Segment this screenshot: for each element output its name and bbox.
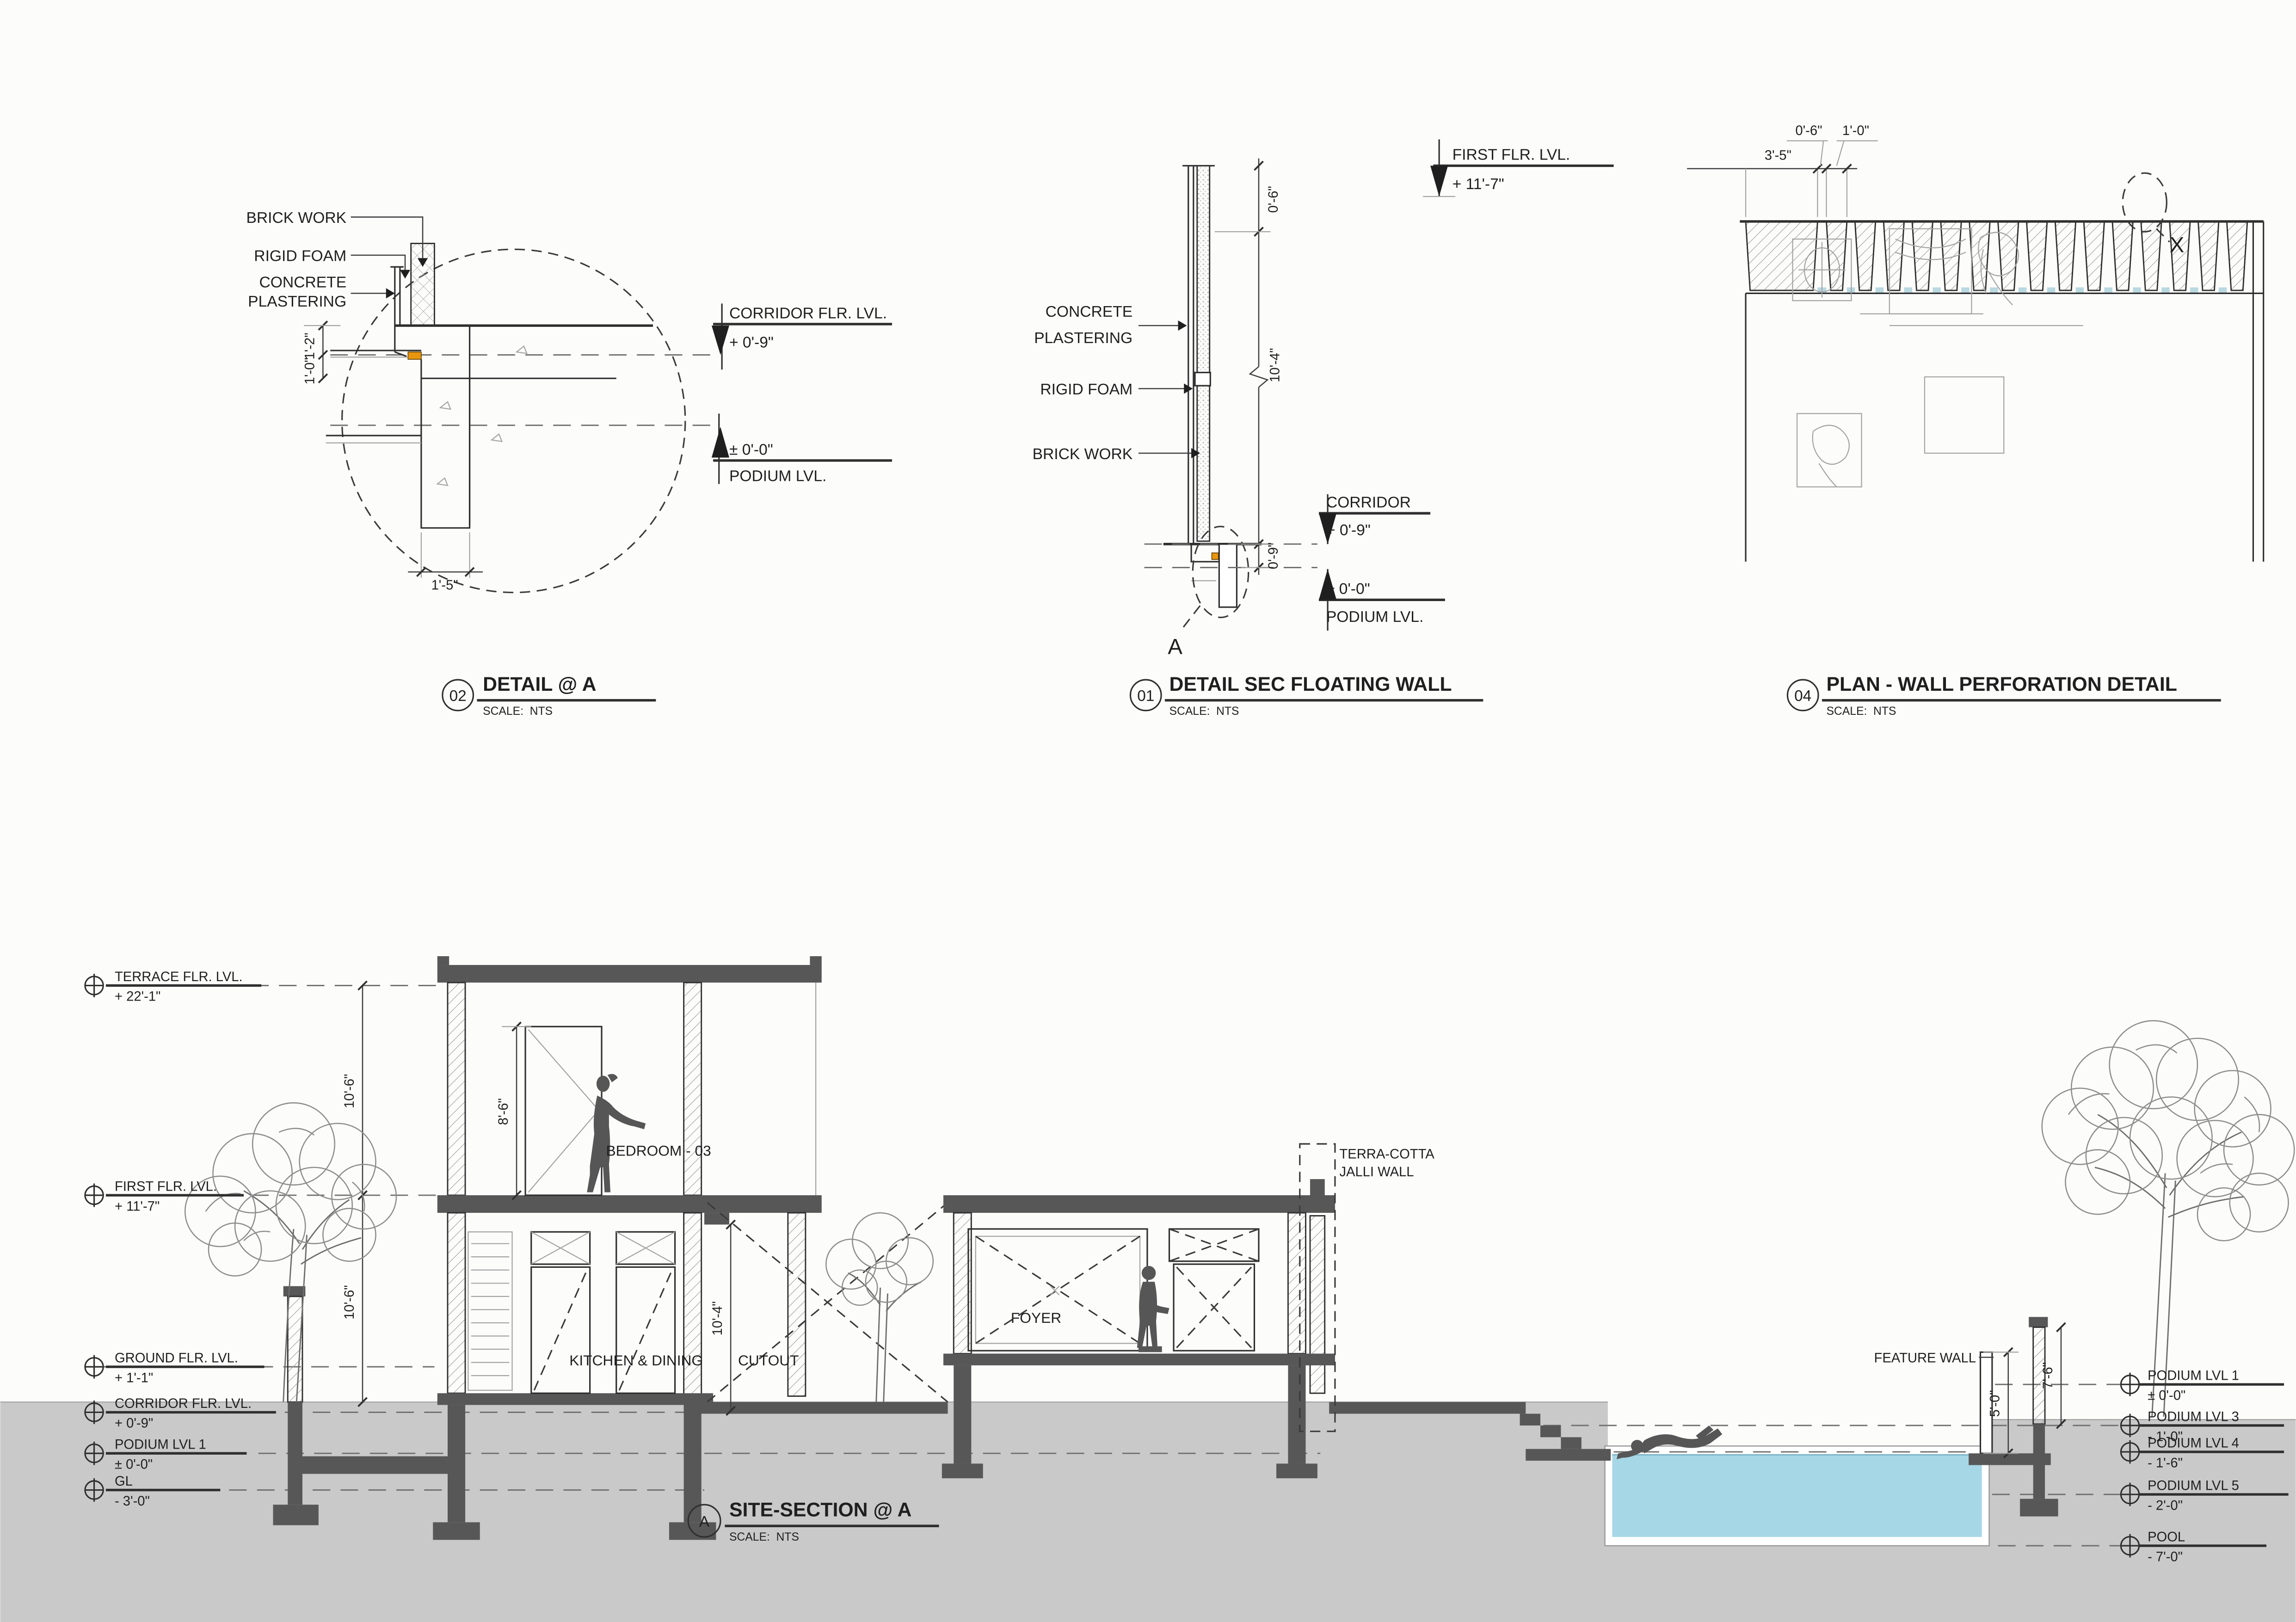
level-name: TERRACE FLR. LVL. xyxy=(115,970,243,984)
arrow-right-icon xyxy=(386,288,395,298)
room-label-kitchen: KITCHEN & DINING xyxy=(569,1352,703,1369)
bedroom-right-wall xyxy=(684,983,702,1195)
cutout-tree xyxy=(826,1213,933,1411)
rigid-foam-label: RIGID FOAM xyxy=(254,248,346,265)
detail-04: 3'-5" 0'-6" 1'-0" X 04 PL xyxy=(1687,123,2264,718)
brick-work-label: BRICK WORK xyxy=(1033,446,1133,463)
level-flag-down-icon xyxy=(712,326,729,355)
room-label-foyer: FOYER xyxy=(1011,1309,1061,1326)
woman-silhouette xyxy=(587,1074,646,1192)
concrete-plastering-label-2: PLASTERING xyxy=(1034,330,1133,347)
corridor-slab xyxy=(684,1402,948,1413)
level-value: - 1'-6" xyxy=(2148,1456,2183,1470)
rigid-foam-label: RIGID FOAM xyxy=(1040,381,1133,398)
ground-right-wall xyxy=(684,1213,702,1402)
detail-title: DETAIL @ A xyxy=(483,673,596,695)
detail-number: 04 xyxy=(1794,688,1811,705)
arrow-down-icon xyxy=(400,270,410,279)
level-value: + 22'-1" xyxy=(115,989,160,1004)
level-value: + 1'-1" xyxy=(115,1370,153,1385)
level-name: GROUND FLR. LVL. xyxy=(115,1351,238,1366)
dim-boundary-wall: 7'-6" xyxy=(2041,1362,2056,1389)
level-name: CORRIDOR FLR. LVL. xyxy=(115,1396,252,1411)
section-dimensions: 10'-6" 10'-6" 8'-6" 10'-4" 7'-6" 5'-0" xyxy=(342,981,2065,1458)
right-tree xyxy=(2042,1021,2295,1417)
beam-stem xyxy=(421,378,470,528)
scale-label: SCALE: xyxy=(1169,705,1210,718)
title-detail-02: 02 DETAIL @ A SCALE: NTS xyxy=(443,673,656,718)
level-name: GL xyxy=(115,1474,133,1489)
dim-feature-wall: 5'-0" xyxy=(1988,1390,2003,1417)
title-detail-01: 01 DETAIL SEC FLOATING WALL SCALE: NTS xyxy=(1130,673,1483,718)
room-label-cutout: CUTOUT xyxy=(738,1352,799,1369)
detail-number: 02 xyxy=(449,688,467,705)
scale-label: SCALE: xyxy=(729,1531,770,1543)
detail-title: DETAIL SEC FLOATING WALL xyxy=(1169,673,1452,695)
dim-slab-depth: 1'-2" xyxy=(302,332,317,359)
level-value: + 11'-7" xyxy=(115,1199,160,1214)
dim-top: 0'-6" xyxy=(1266,186,1281,213)
dim-lower-floor: 10'-6" xyxy=(342,1285,357,1319)
kitchen-interior xyxy=(468,1232,675,1393)
beam-stem xyxy=(1219,544,1237,607)
callout-letter: A xyxy=(1168,635,1182,659)
level-flag-up-icon xyxy=(712,427,729,458)
podium-label: PODIUM LVL. xyxy=(1326,608,1423,626)
upper-left-wall xyxy=(448,983,465,1195)
podium-lvl-value: ± 0'-0" xyxy=(729,441,773,458)
foyer-interior xyxy=(968,1229,1259,1351)
dim-bottom: 0'-9" xyxy=(1266,542,1281,569)
scale-label: SCALE: xyxy=(1826,705,1867,718)
level-value: - 2'-0" xyxy=(2148,1498,2183,1513)
level-name: PODIUM LVL 4 xyxy=(2148,1436,2239,1451)
section-title: SITE-SECTION @ A xyxy=(729,1499,911,1521)
dim-bedroom-clear: 8'-6" xyxy=(496,1098,511,1125)
level-value: - 3'-0" xyxy=(115,1494,150,1509)
level-value: ± 0'-0" xyxy=(115,1457,153,1472)
dim-wall-height: 10'-4" xyxy=(1268,348,1282,382)
datum-icon xyxy=(85,974,103,997)
detail-01: A CONCRETE PLASTERING RIGID FOAM BRICK W… xyxy=(1033,139,1614,718)
scale-value: NTS xyxy=(776,1531,799,1543)
man-silhouette xyxy=(1137,1266,1170,1352)
scale-value: NTS xyxy=(1873,705,1896,718)
dim-gap: 0'-6" xyxy=(1795,123,1822,138)
level-value: - 7'-0" xyxy=(2148,1549,2183,1564)
detail-title: PLAN - WALL PERFORATION DETAIL xyxy=(1826,673,2177,695)
ground-left-wall xyxy=(448,1213,465,1393)
jalli-wall xyxy=(1310,1216,1325,1393)
level-value: + 0'-9" xyxy=(115,1416,153,1431)
level-value: ± 0'-0" xyxy=(2148,1388,2185,1403)
concrete-plastering-label-1: CONCRETE xyxy=(1046,303,1133,320)
corridor-flr-lvl-value: + 0'-9" xyxy=(729,334,774,351)
podium-lvl-label: PODIUM LVL. xyxy=(729,467,826,485)
perforation-gaps xyxy=(1817,288,2227,294)
feature-wall-label: FEATURE WALL xyxy=(1874,1351,1976,1366)
detail-boundary-circle xyxy=(342,249,685,592)
site-section: TERRA-COTTA JALLI WALL FEATURE WALL xyxy=(0,956,2296,1622)
foyer-roof-slab xyxy=(943,1195,1335,1213)
callout-letter: X xyxy=(2170,233,2185,258)
title-detail-04: 04 PLAN - WALL PERFORATION DETAIL SCALE:… xyxy=(1787,673,2221,718)
room-label-bedroom: BEDROOM - 03 xyxy=(606,1142,711,1159)
rcc-band xyxy=(1195,373,1210,386)
arrow-right-icon xyxy=(1178,320,1187,331)
cutout-x-lines xyxy=(707,1203,948,1402)
podium-value: ± 0'-0" xyxy=(1326,581,1370,598)
first-flr-lvl-label: FIRST FLR. LVL. xyxy=(1453,147,1570,164)
sheet-canvas: BRICK WORK RIGID FOAM CONCRETE PLASTERIN… xyxy=(0,0,2296,1622)
brick-work-label: BRICK WORK xyxy=(246,209,347,227)
datum-icon xyxy=(85,1184,103,1207)
floating-wall xyxy=(788,1213,806,1396)
detail-number: 01 xyxy=(1137,688,1154,705)
level-name: POOL xyxy=(2148,1530,2185,1545)
terrace-slab xyxy=(1329,1402,1526,1413)
roof-slab xyxy=(437,965,822,983)
drawing-sheet: BRICK WORK RIGID FOAM CONCRETE PLASTERIN… xyxy=(0,0,2296,1622)
recessed-light-fixture xyxy=(408,352,421,359)
dim-module: 1'-0" xyxy=(1842,123,1869,138)
dim-upper-floor: 10'-6" xyxy=(342,1074,357,1108)
level-flag-down-icon xyxy=(1430,166,1448,197)
dim-drop: 1'-0" xyxy=(302,357,317,384)
level-name: PODIUM LVL 5 xyxy=(2148,1479,2239,1493)
datum-icon xyxy=(85,1355,103,1379)
jalli-label-1: TERRA-COTTA xyxy=(1339,1147,1434,1162)
corridor-label: CORRIDOR xyxy=(1326,494,1411,511)
corridor-flr-lvl-label: CORRIDOR FLR. LVL. xyxy=(729,305,887,322)
level-name: PODIUM LVL 1 xyxy=(2148,1369,2239,1383)
scale-value: NTS xyxy=(530,705,553,718)
level-name: PODIUM LVL 1 xyxy=(115,1438,206,1452)
first-floor-slab xyxy=(437,1195,822,1213)
level-name: FIRST FLR. LVL. xyxy=(115,1179,217,1194)
datum-icon xyxy=(2121,1373,2139,1396)
detail-02: BRICK WORK RIGID FOAM CONCRETE PLASTERIN… xyxy=(246,209,893,718)
dim-break-icon xyxy=(1250,367,1268,387)
dim-solid: 3'-5" xyxy=(1765,148,1791,163)
concrete-plastering-label-1: CONCRETE xyxy=(259,274,347,291)
section-letter: A xyxy=(699,1513,710,1530)
jalli-label-2: JALLI WALL xyxy=(1339,1165,1414,1180)
ground-floor-slab xyxy=(437,1393,713,1405)
scale-label: SCALE: xyxy=(483,705,523,718)
brick-wall-section xyxy=(1197,166,1210,541)
level-name: PODIUM LVL 3 xyxy=(2148,1409,2239,1424)
dim-stem-width: 1'-5" xyxy=(431,578,458,593)
recessed-light-fixture xyxy=(1212,553,1218,559)
concrete-plastering-label-2: PLASTERING xyxy=(248,293,346,310)
pool-water xyxy=(1612,1455,1982,1537)
scale-value: NTS xyxy=(1216,705,1239,718)
first-flr-lvl-value: + 11'-7" xyxy=(1453,176,1504,193)
corridor-value: + 0'-9" xyxy=(1326,522,1371,539)
foyer-floor-slab xyxy=(943,1354,1335,1365)
dim-cutout-height: 10'-4" xyxy=(710,1301,725,1335)
